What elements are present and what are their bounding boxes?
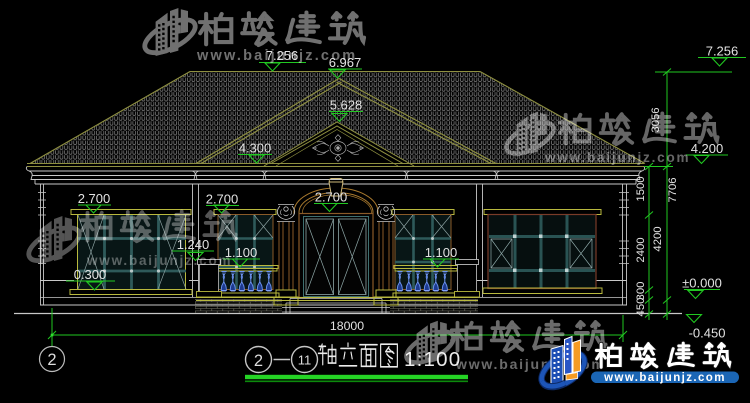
svg-text:2.700: 2.700 [315,190,348,205]
svg-text:www.baijunjz.com: www.baijunjz.com [603,372,726,384]
svg-text:4.300: 4.300 [239,141,272,156]
svg-text:2: 2 [47,351,56,369]
svg-text:1500: 1500 [635,176,647,201]
svg-text:www.baijunjz.com: www.baijunjz.com [196,48,357,64]
svg-text:www.baijunjz.com: www.baijunjz.com [544,150,690,165]
svg-text:2.700: 2.700 [206,192,239,207]
svg-text:18000: 18000 [330,319,364,333]
svg-text:0.300: 0.300 [74,267,107,282]
svg-text:4.200: 4.200 [691,141,724,156]
svg-text:4200: 4200 [652,226,664,251]
svg-text:7.256: 7.256 [706,44,739,59]
svg-text:2400: 2400 [635,237,647,262]
svg-text:11: 11 [298,353,312,368]
svg-text:2: 2 [254,352,263,370]
svg-text:-0.450: -0.450 [689,326,726,341]
svg-text:450: 450 [635,298,647,317]
svg-text:±0.000: ±0.000 [682,276,722,291]
svg-text:www.baijunjz.com: www.baijunjz.com [86,253,232,268]
svg-text:2.700: 2.700 [78,191,111,206]
svg-text:7706: 7706 [667,177,679,202]
svg-text:5.628: 5.628 [330,98,363,113]
svg-text:1.100: 1.100 [425,245,458,260]
